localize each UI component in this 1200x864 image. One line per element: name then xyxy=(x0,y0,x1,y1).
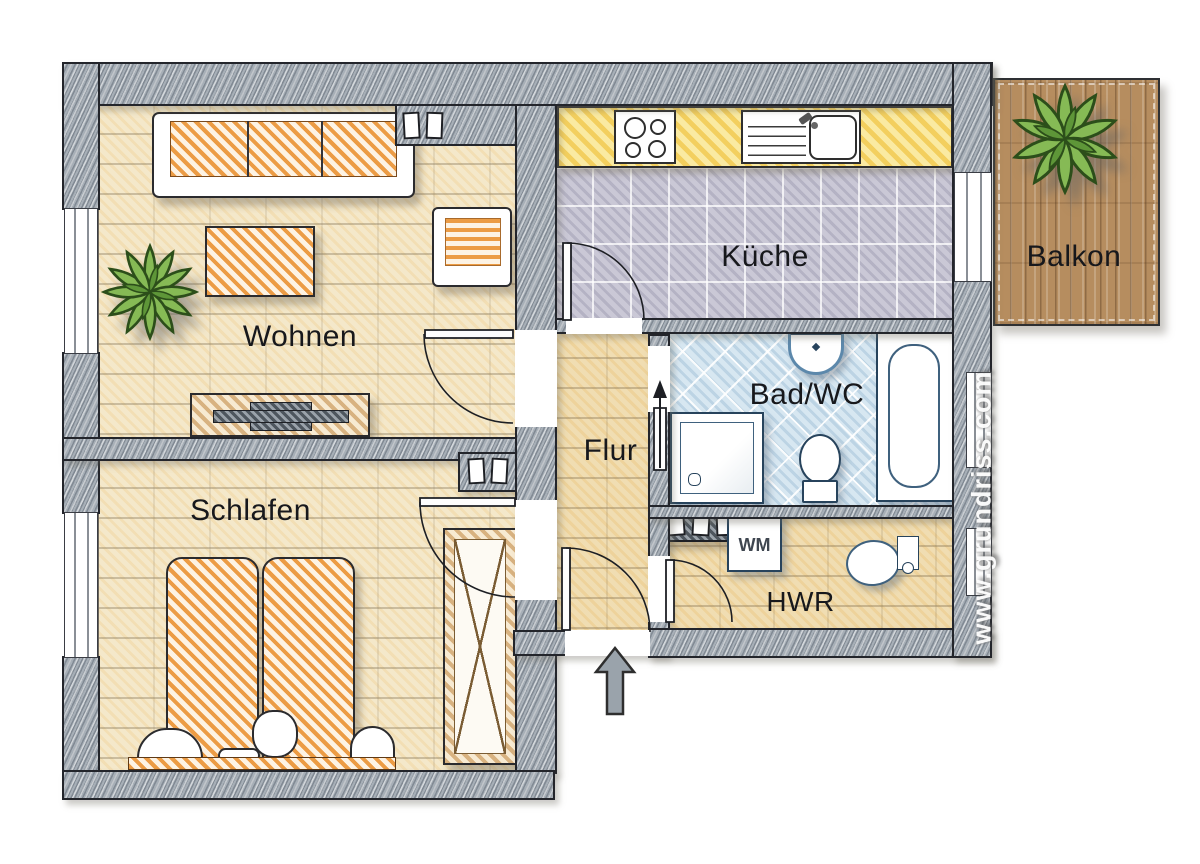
balkon-label: Balkon xyxy=(1018,240,1130,274)
shower xyxy=(670,412,764,504)
shower-tray xyxy=(680,422,754,494)
drainer xyxy=(748,118,806,158)
window-glass-line xyxy=(966,173,968,281)
hwr-tap-knob xyxy=(902,562,914,574)
stove xyxy=(614,110,676,164)
kitchen-sink-unit xyxy=(741,110,861,164)
schlafen-label: Schlafen xyxy=(178,494,323,528)
window-glass-line xyxy=(74,209,76,353)
duct-icon xyxy=(490,458,508,485)
hwr-label: HWR xyxy=(758,586,843,618)
bad-sliding-opening xyxy=(648,346,670,412)
sofa xyxy=(152,112,415,198)
wall-left-middle xyxy=(62,352,100,514)
wardrobe xyxy=(443,528,517,765)
window-glass-line xyxy=(87,513,89,657)
window-glass-line xyxy=(980,173,982,281)
entrance-door-opening xyxy=(565,630,650,656)
wall-wohnen-schlafen xyxy=(62,437,517,461)
toilet-bowl xyxy=(799,434,841,484)
faucet-knob xyxy=(811,122,818,129)
hwr-door-opening xyxy=(648,556,670,622)
kitchen-counter xyxy=(557,106,953,168)
sofa-cushions xyxy=(170,121,397,177)
duct-icon xyxy=(426,112,444,140)
burner xyxy=(650,119,666,135)
duct-icon xyxy=(402,112,420,140)
watermark: www.grundriss.com xyxy=(967,358,998,658)
burner xyxy=(625,142,641,158)
sideboard xyxy=(190,393,370,437)
entry-arrow-icon xyxy=(596,648,634,714)
shower-drain xyxy=(688,473,701,486)
wall-top xyxy=(62,62,993,106)
window-glass-line xyxy=(74,513,76,657)
washing-machine-label: WM xyxy=(727,535,782,556)
kueche-label: Küche xyxy=(700,240,830,274)
wohnen-label: Wohnen xyxy=(215,320,385,354)
kueche-door-opening xyxy=(566,318,642,334)
window-glass-line xyxy=(87,209,89,353)
basin-faucet-icon xyxy=(812,343,820,351)
bathtub xyxy=(876,332,954,502)
toilet-cistern xyxy=(802,480,838,503)
schlafen-door-opening xyxy=(515,500,557,600)
wall-left-upper xyxy=(62,62,100,210)
armchair-cushion xyxy=(445,218,501,266)
floor-plan: WM xyxy=(0,0,1200,864)
schlafen-window xyxy=(64,512,98,658)
wohnen-door-opening xyxy=(515,330,557,427)
bathtub-basin xyxy=(888,344,940,488)
wardrobe-doors xyxy=(454,539,506,754)
flur-floor xyxy=(553,328,652,634)
armchair xyxy=(432,207,512,287)
burner xyxy=(624,117,646,139)
wall-hwr-bottom xyxy=(648,628,992,658)
flur-label: Flur xyxy=(568,434,653,468)
burner xyxy=(648,140,666,158)
wall-schlafen-bottom xyxy=(62,770,555,800)
balcony-plant-icon xyxy=(1006,80,1124,198)
balkon-door xyxy=(954,172,992,282)
coffee-table xyxy=(205,226,315,297)
plant-icon xyxy=(97,239,203,345)
bad-label: Bad/WC xyxy=(742,378,872,412)
wall-bad-bottom xyxy=(648,505,954,519)
wohnen-window xyxy=(64,208,98,354)
bed-headboard xyxy=(128,757,396,770)
toilet xyxy=(798,434,844,506)
duct-icon xyxy=(467,458,485,485)
